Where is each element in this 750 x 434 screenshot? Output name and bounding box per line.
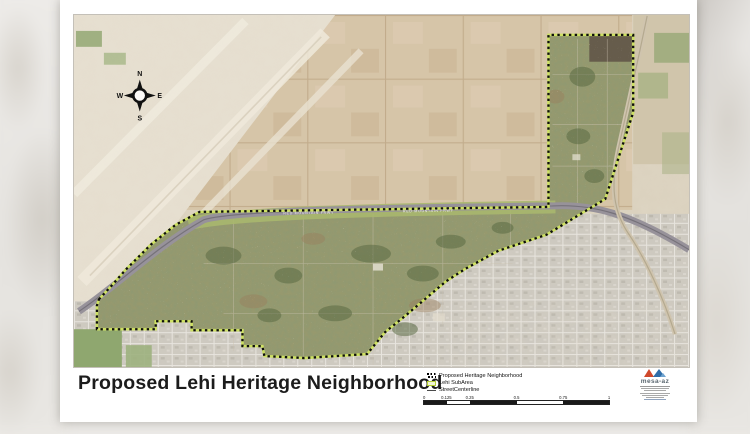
compass-east-label: E: [157, 93, 162, 100]
legend-item-proposed-heritage-neighborhood: Proposed Heritage Neighborhood: [427, 372, 522, 379]
scale-tick-label: 0.125: [441, 395, 451, 400]
freeway-label: RED MOUNTAIN FRWY: [403, 209, 454, 214]
logo-fine-print: [632, 388, 678, 400]
subarea-swatch-icon: [427, 381, 436, 386]
aerial-map: RED MOUNTAIN FRWY RED MOUNTAIN FRWY N E …: [73, 14, 690, 368]
scale-tick-label: 0.75: [559, 395, 567, 400]
mesa-az-logo: mesa-az: [632, 369, 678, 401]
mesa-az-logo-text: mesa-az: [632, 378, 678, 385]
legend-item-label: Lehi SubArea: [439, 380, 473, 386]
legend-item-street-centerline: StreetCenterline: [427, 387, 522, 394]
scale-bar: 0 0.125 0.25 0.5 0.75 1: [423, 395, 610, 405]
scale-tick-label: 0.5: [514, 395, 520, 400]
legend-item-label: StreetCenterline: [439, 387, 479, 393]
blurred-background-right: [688, 0, 750, 434]
scale-tick-label: 0.25: [466, 395, 474, 400]
centerline-swatch-icon: [427, 390, 436, 392]
legend-item-label: Proposed Heritage Neighborhood: [439, 373, 522, 379]
scale-bar-segments: [423, 400, 610, 405]
map-sheet: RED MOUNTAIN FRWY RED MOUNTAIN FRWY N E …: [60, 0, 697, 422]
legend-item-lehi-subarea: Lehi SubArea: [427, 379, 522, 386]
compass-west-label: W: [117, 93, 124, 100]
logo-divider: [640, 386, 670, 387]
scale-bar-labels: 0 0.125 0.25 0.5 0.75 1: [423, 395, 610, 400]
dashed-boundary-swatch-icon: [427, 373, 436, 378]
freeway-label: RED MOUNTAIN FRWY: [283, 211, 334, 216]
scale-tick-label: 1: [608, 395, 610, 400]
aerial-map-image: RED MOUNTAIN FRWY RED MOUNTAIN FRWY N E …: [74, 15, 689, 367]
mesa-az-logo-mark-icon: [644, 369, 666, 377]
map-title: Proposed Lehi Heritage Neighborhood: [78, 372, 443, 395]
scale-tick-label: 0: [423, 395, 425, 400]
compass-north-label: N: [137, 71, 142, 78]
compass-south-label: S: [137, 115, 142, 122]
legend: Proposed Heritage Neighborhood Lehi SubA…: [427, 372, 522, 394]
